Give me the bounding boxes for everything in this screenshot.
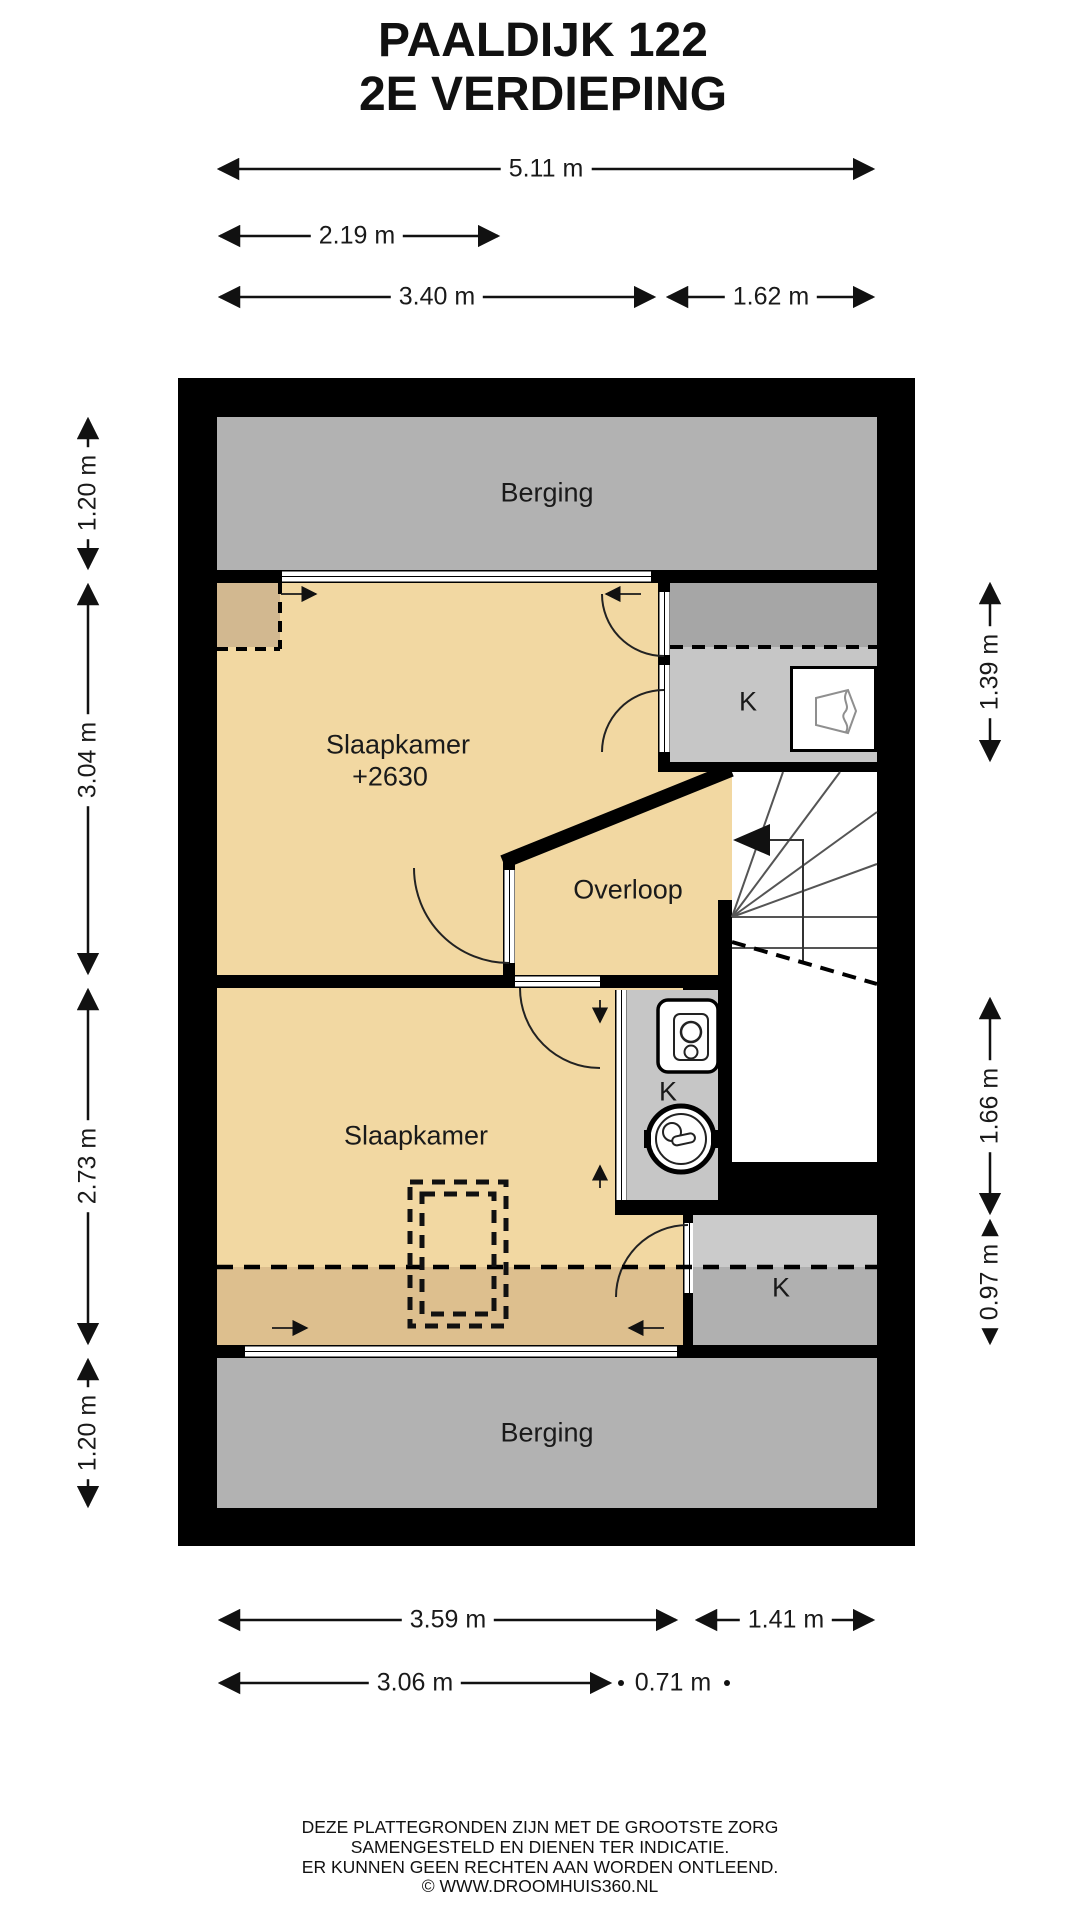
- disclaimer-line-2: SAMENGESTELD EN DIENEN TER INDICATIE.: [0, 1838, 1080, 1858]
- door-post: [658, 655, 670, 665]
- door-post: [658, 752, 670, 762]
- room-label-closet-middle: K: [659, 1077, 677, 1108]
- title-floor: 2E VERDIEPING: [0, 68, 1080, 122]
- room-label-berging-top: Berging: [500, 478, 593, 509]
- dim-left-120b: 1.20 m: [73, 1387, 104, 1479]
- dim-left-120a: 1.20 m: [73, 447, 104, 539]
- wall-segment: [658, 762, 877, 772]
- room-label-closet-bottom: K: [772, 1273, 790, 1304]
- room-slaapkamer-2-low: [217, 1267, 683, 1345]
- disclaimer-line-4: © WWW.DROOMHUIS360.NL: [0, 1877, 1080, 1897]
- room-label-berging-bottom: Berging: [500, 1418, 593, 1449]
- wall-segment: [718, 1162, 877, 1215]
- door-post: [503, 963, 515, 975]
- skylight-box: [790, 666, 877, 752]
- dim-bottom-071: 0.71 m: [627, 1668, 719, 1699]
- dim-bottom-359: 3.59 m: [402, 1605, 494, 1636]
- wall-segment: [217, 975, 515, 988]
- wall-segment: [615, 1200, 718, 1215]
- door-post: [683, 1215, 693, 1223]
- wall-segment: [217, 570, 282, 583]
- room-slaapkamer-1: [217, 583, 732, 975]
- stairwell: [732, 772, 877, 1162]
- closet-partition: [615, 990, 627, 1200]
- door-frame: [503, 870, 515, 963]
- double-door-frame: [658, 592, 670, 655]
- title-address: PAALDIJK 122: [0, 14, 1080, 68]
- room-label-slaapkamer-1: Slaapkamer: [326, 730, 470, 761]
- window-top: [282, 570, 651, 583]
- wall-segment: [683, 1302, 693, 1345]
- dim-left-304: 3.04 m: [73, 714, 104, 806]
- dim-right-139: 1.39 m: [975, 626, 1006, 718]
- closet-top-right-upper: [670, 583, 877, 647]
- page-title: PAALDIJK 122 2E VERDIEPING: [0, 14, 1080, 122]
- wall-segment: [217, 1345, 245, 1358]
- wall-segment: [718, 900, 732, 1162]
- floorplan-page: PAALDIJK 122 2E VERDIEPING: [0, 0, 1080, 1920]
- room-label-slaapkamer-1-level: +2630: [352, 762, 428, 793]
- dim-right-097: 0.97 m: [975, 1236, 1006, 1328]
- door-post: [683, 1293, 693, 1302]
- wall-segment: [677, 1345, 877, 1358]
- disclaimer-line-3: ER KUNNEN GEEN RECHTEN AAN WORDEN ONTLEE…: [0, 1858, 1080, 1878]
- low-headroom-nook: [217, 583, 280, 647]
- dim-left-273: 2.73 m: [73, 1120, 104, 1212]
- dim-bottom-141: 1.41 m: [740, 1605, 832, 1636]
- room-label-overloop: Overloop: [573, 875, 683, 906]
- dim-top-162: 1.62 m: [725, 282, 817, 313]
- dim-right-166: 1.66 m: [975, 1060, 1006, 1152]
- window-bottom: [245, 1345, 677, 1358]
- door-post: [658, 583, 670, 592]
- disclaimer-line-1: DEZE PLATTEGRONDEN ZIJN MET DE GROOTSTE …: [0, 1818, 1080, 1838]
- dim-top-511: 5.11 m: [501, 154, 592, 185]
- room-label-slaapkamer-2: Slaapkamer: [344, 1121, 488, 1152]
- door-frame: [683, 1223, 693, 1293]
- closet-bottom-right-upper: [693, 1215, 877, 1267]
- wall-segment: [651, 570, 877, 583]
- disclaimer: DEZE PLATTEGRONDEN ZIJN MET DE GROOTSTE …: [0, 1818, 1080, 1897]
- dim-bottom-306: 3.06 m: [369, 1668, 461, 1699]
- door-frame: [515, 975, 600, 988]
- double-door-frame: [658, 665, 670, 752]
- dim-top-340: 3.40 m: [391, 282, 483, 313]
- dim-top-219: 2.19 m: [311, 221, 403, 252]
- door-post: [503, 855, 515, 870]
- room-label-closet-top: K: [739, 687, 757, 718]
